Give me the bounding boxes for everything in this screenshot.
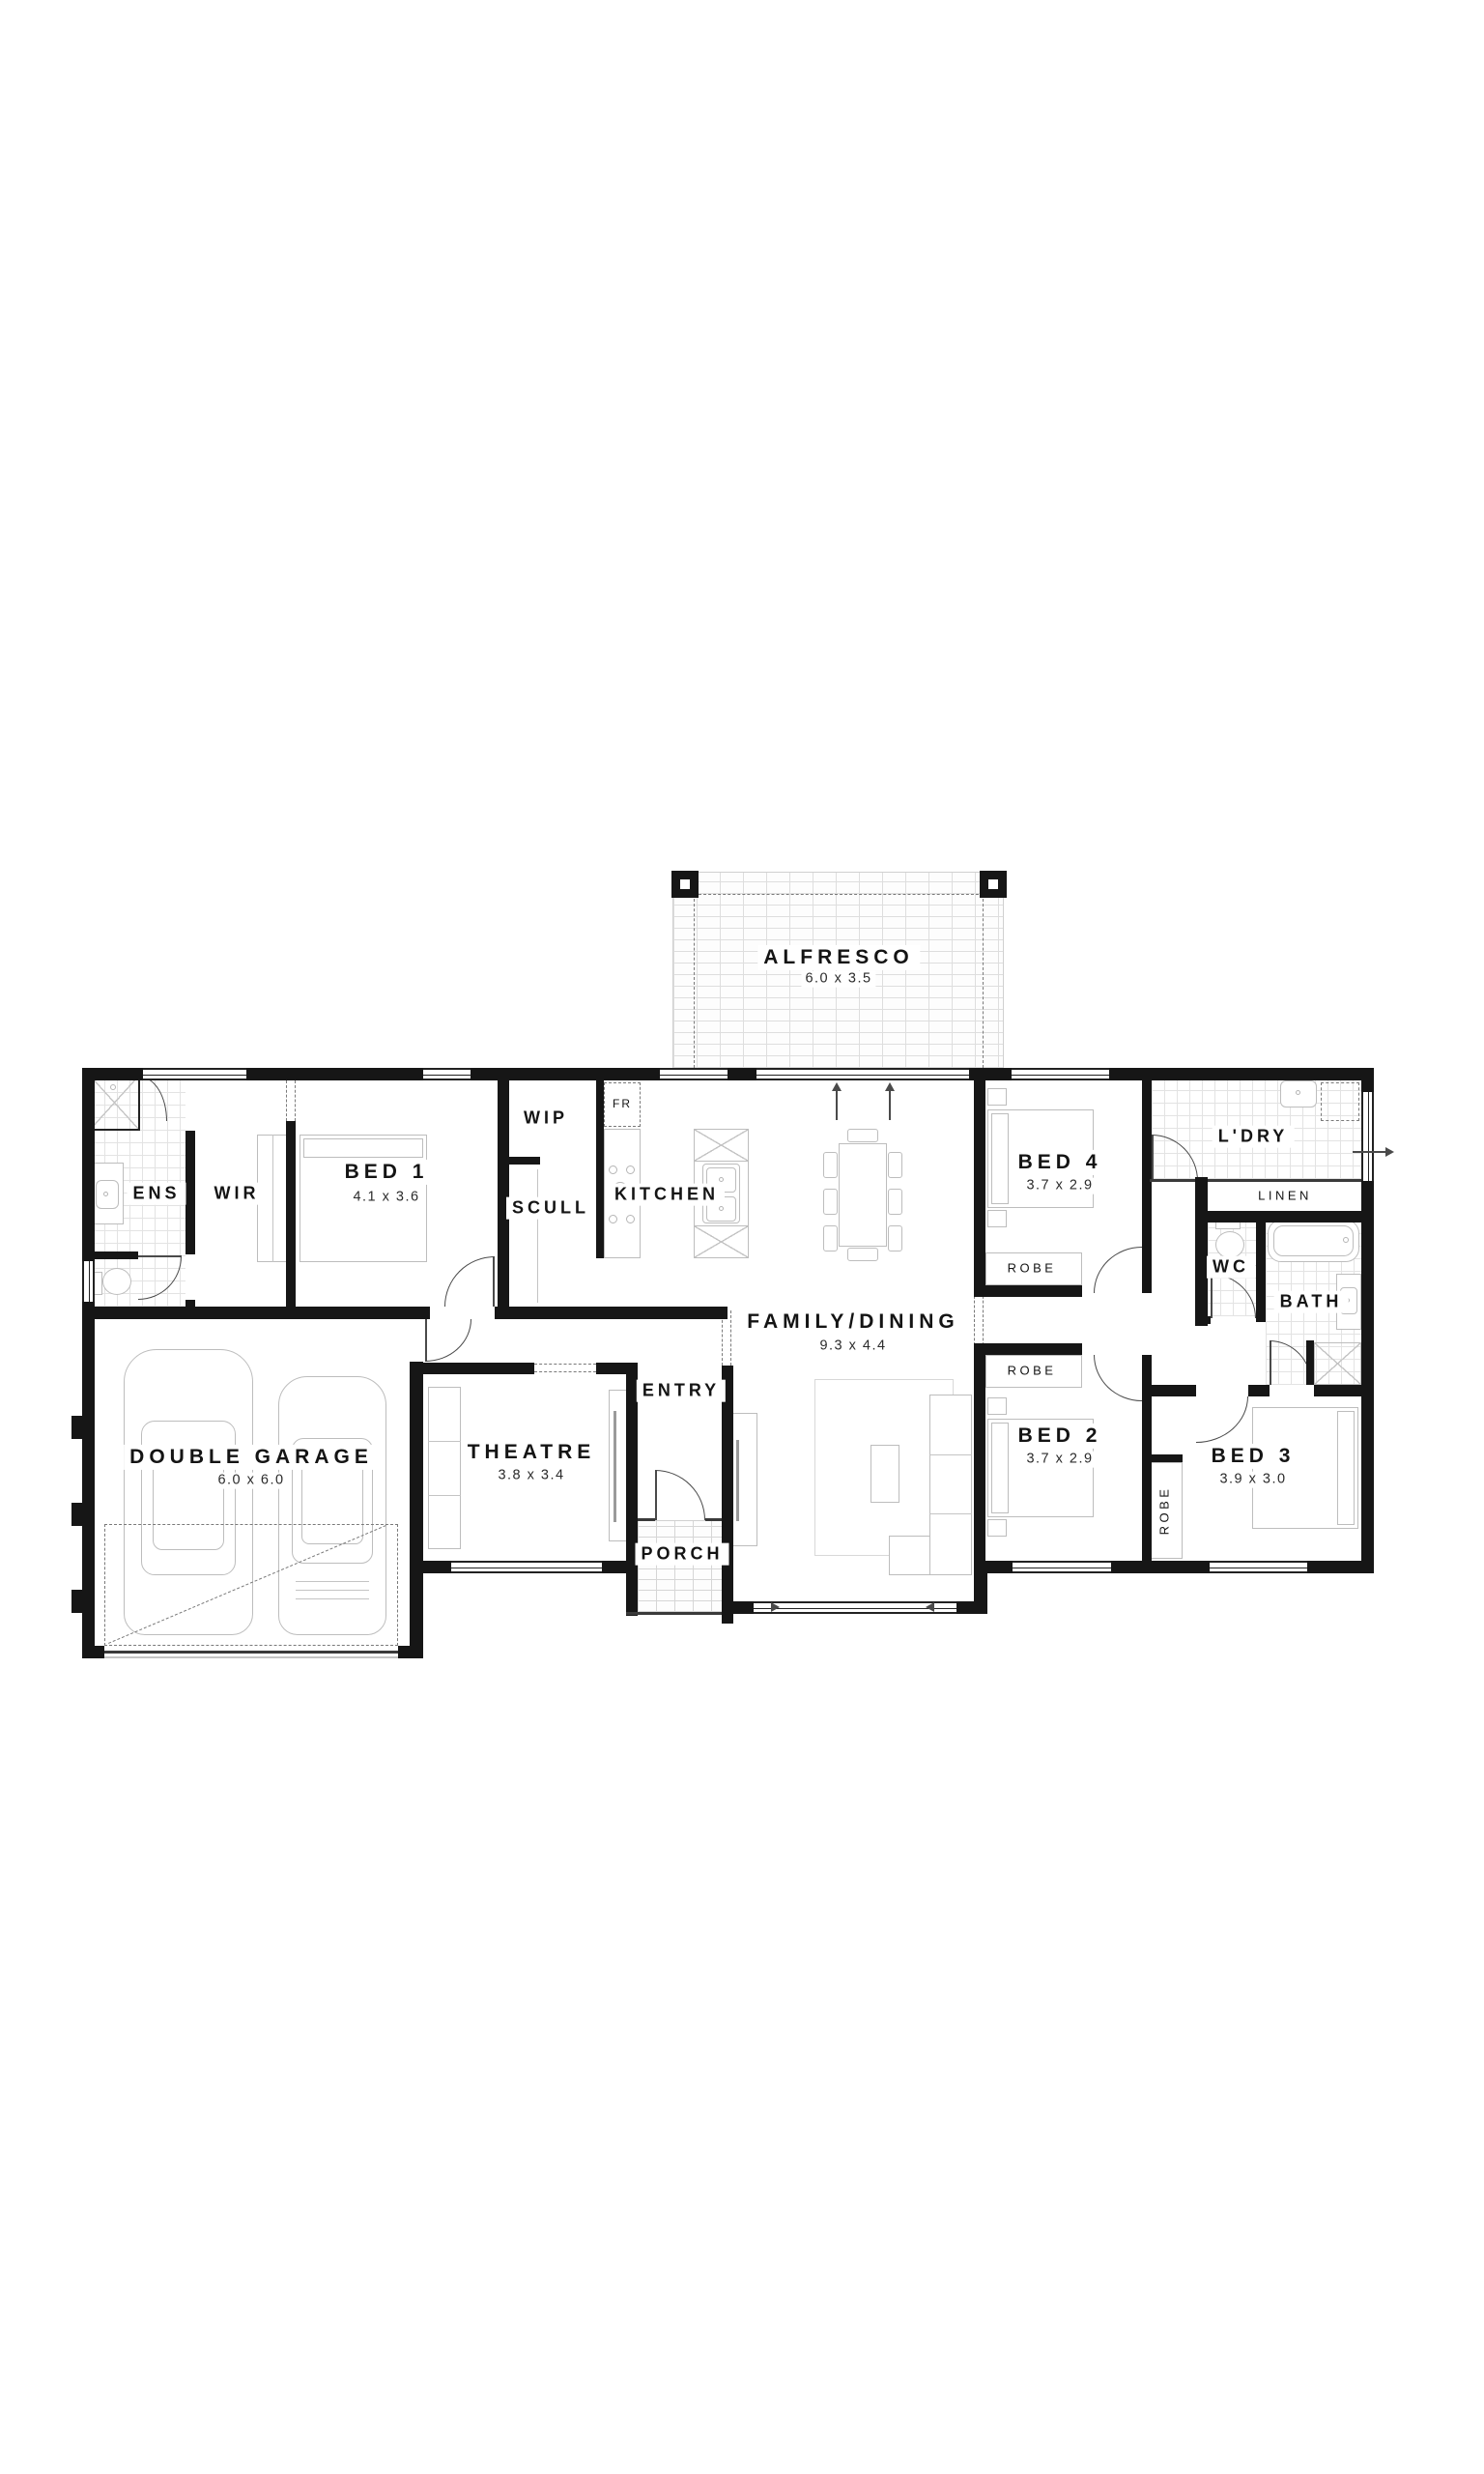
porch-sill [638,1518,655,1521]
room-label-wc: WC [1207,1256,1255,1279]
wall [398,1646,423,1658]
ens-door-leaf [138,1255,182,1257]
wall [495,1307,728,1319]
room-label-wir: WIR [209,1183,266,1205]
wall [498,1080,509,1307]
bulkhead-dashed [295,1080,296,1121]
wall [1195,1316,1211,1324]
exit-arrow-icon [1385,1147,1394,1157]
wall-pier [71,1590,83,1613]
room-label-kitchen: KITCHEN [609,1184,725,1206]
theatre-sofa [428,1387,461,1549]
wall [728,1068,756,1080]
dining-chair [847,1248,878,1261]
label-robe-bed2: ROBE [1004,1364,1061,1380]
wall [1314,1385,1361,1396]
linen-front-line [1150,1179,1361,1182]
porch-paving [638,1521,722,1612]
wall [1142,1385,1196,1396]
alfresco-sliding-door [756,1068,969,1080]
wall [286,1121,296,1307]
sofa [889,1536,930,1575]
window [1012,1068,1109,1080]
sink-drain-icon [719,1177,724,1182]
bulkhead-dashed [534,1364,596,1365]
scullery-bench-line [537,1169,538,1303]
wall [1208,1211,1361,1223]
bedside-table [987,1210,1007,1227]
window [660,1068,728,1080]
room-dim-bed2: 3.7 x 2.9 [1022,1452,1097,1468]
wall [974,1285,1082,1297]
wall-pier [71,1503,83,1526]
room-dim-bed4: 3.7 x 2.9 [1022,1178,1097,1194]
bed2-window [1013,1561,1111,1573]
window [423,1068,471,1080]
wall [185,1131,195,1254]
bedside-table [987,1088,1007,1106]
room-label-alfresco: ALFRESCO [757,945,920,970]
front-door-arc [655,1470,705,1520]
sofa-cushion-line [929,1513,972,1514]
bed-pillow [991,1113,1009,1204]
wall [410,1362,423,1646]
bathtub-inner [1273,1225,1354,1256]
island-cabinet [694,1129,749,1162]
wall [974,1561,987,1614]
cooktop-burner [626,1165,635,1174]
wall [1306,1340,1314,1385]
wall-pier [71,1416,83,1439]
room-dim-alfresco: 6.0 x 3.5 [801,971,875,988]
ldry-door-leaf [1152,1135,1154,1181]
wall [596,1075,604,1258]
cooktop-burner [626,1215,635,1223]
floor-plan: ALFRESCO 6.0 x 3.5 ENS WIR BED 1 4.1 x 3… [0,0,1484,2474]
room-label-wip: WIP [518,1108,574,1130]
dining-chair [823,1225,838,1251]
wall [722,1366,733,1624]
wall [1361,1181,1374,1573]
alfresco-post-right [980,871,1007,898]
alfresco-post-left [671,871,699,898]
door-swing-arrow-icon [832,1082,842,1091]
wall [1195,1177,1208,1326]
window [82,1261,95,1302]
window [143,1068,246,1080]
slider-arrow-icon [771,1602,780,1612]
dining-table [839,1143,887,1247]
room-label-entry: ENTRY [637,1380,726,1402]
garage-door-line [104,1651,398,1654]
opening-dashed [974,1291,975,1350]
wall [246,1068,423,1080]
wc-door-leaf [1211,1274,1213,1318]
room-dim-theatre: 3.8 x 3.4 [494,1468,568,1484]
dining-chair [888,1225,902,1251]
appliance-space [1321,1082,1359,1121]
theatre-window [451,1561,602,1573]
room-label-garage: DOUBLE GARAGE [124,1445,379,1470]
room-label-family: FAMILY/DINING [741,1309,964,1335]
dining-chair [823,1152,838,1178]
cooktop-burner [609,1165,617,1174]
tub-drain-icon [1343,1237,1349,1243]
garage-door-line [104,1656,398,1658]
shower-head-icon [110,1084,116,1090]
arrow-line [889,1091,891,1120]
bed2-door-arc [1094,1355,1142,1401]
bath-shower [1314,1342,1361,1385]
basin-drain-icon [103,1192,108,1196]
arrow-line [836,1091,838,1120]
wall [1248,1385,1270,1396]
room-dim-family: 9.3 x 4.4 [815,1338,890,1355]
wall [974,1080,985,1291]
sofa-cushion-line [929,1454,972,1455]
wall [974,1350,985,1561]
bath-door-leaf [1270,1340,1271,1385]
room-label-bed2: BED 2 [1013,1424,1108,1449]
wall [1111,1561,1210,1573]
bed1-door-leaf [493,1256,495,1307]
island-cabinet [694,1225,749,1258]
room-label-bed4: BED 4 [1013,1150,1108,1175]
room-label-bed3: BED 3 [1206,1444,1301,1469]
bed3-door-arc [1196,1396,1248,1443]
dining-chair [823,1189,838,1215]
toilet-bowl [1215,1231,1244,1258]
wall [974,1343,1082,1355]
opening-dashed [730,1310,731,1366]
label-fridge: FR [610,1097,635,1112]
wall [185,1300,195,1308]
wall [471,1068,660,1080]
wall [602,1561,626,1573]
wall [498,1157,540,1165]
wall [1256,1218,1266,1322]
dining-chair [847,1129,878,1142]
garage-door-arc [425,1319,471,1362]
bed1-door-arc [444,1256,495,1307]
dining-chair [888,1152,902,1178]
bulkhead-dashed [534,1371,596,1372]
wall [969,1068,1012,1080]
room-dim-garage: 6.0 x 6.0 [214,1473,288,1489]
room-label-bath: BATH [1274,1291,1349,1313]
door-swing-arrow-icon [885,1082,895,1091]
porch-edge [626,1612,722,1615]
bed-pillow [991,1423,1009,1513]
room-label-bed1: BED 1 [339,1160,435,1185]
wall [1142,1080,1152,1293]
sink-drain-icon [1296,1090,1300,1095]
theatre-screen [614,1411,616,1522]
sink-drain-icon [719,1206,724,1211]
wall [1361,1068,1374,1092]
shower [89,1075,140,1131]
dining-chair [888,1189,902,1215]
sofa [929,1395,972,1575]
coffee-table [870,1445,899,1503]
sofa-cushion-line [428,1441,461,1442]
bulkhead-dashed [286,1080,287,1121]
wall [82,1646,104,1658]
room-dim-bed1: 4.1 x 3.6 [349,1190,423,1206]
ldry-exit-door [1361,1092,1374,1181]
label-linen: LINEN [1254,1189,1316,1205]
bed3-window [1210,1561,1307,1573]
sofa-cushion-line [428,1495,461,1496]
room-label-scull: SCULL [506,1197,595,1220]
wir-rail [272,1135,273,1262]
arrow-line [1353,1151,1387,1153]
bed4-door-arc [1094,1247,1142,1293]
room-label-ldry: L'DRY [1213,1126,1295,1148]
wall [1142,1454,1183,1462]
wall [1307,1561,1374,1573]
wall [82,1319,95,1658]
room-dim-bed3: 3.9 x 3.0 [1215,1472,1290,1488]
toilet-bowl [102,1268,131,1295]
wall [1109,1068,1374,1080]
label-robe-bed3: ROBE [1157,1482,1174,1539]
room-label-ens: ENS [127,1183,185,1205]
garage-door-recess [104,1524,398,1646]
porch-sill [705,1518,722,1521]
wall [82,1307,430,1319]
bedside-table [987,1519,1007,1537]
tv [736,1440,739,1521]
room-label-porch: PORCH [635,1543,728,1566]
bed-pillow [1337,1411,1355,1525]
bed-pillow [303,1138,423,1158]
wall [410,1363,534,1374]
front-door-leaf [655,1470,657,1520]
bedside-table [987,1397,1007,1415]
room-label-theatre: THEATRE [462,1440,602,1465]
theatre-cabinet [609,1390,628,1541]
garage-door-leaf [425,1319,427,1362]
wall [92,1251,138,1259]
opening-dashed [983,1291,984,1350]
cooktop-burner [609,1215,617,1223]
label-robe-bed4: ROBE [1004,1261,1061,1278]
slider-arrow-icon [926,1602,934,1612]
